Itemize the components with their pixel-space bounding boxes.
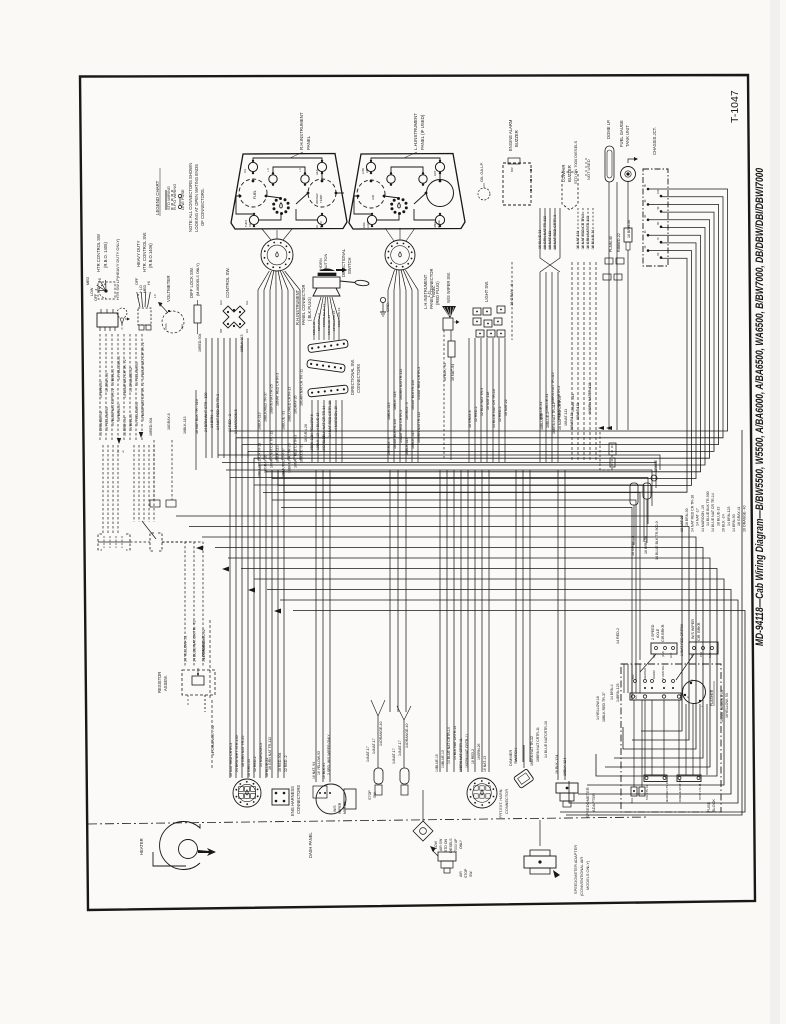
- svg-text:HI: HI: [98, 278, 102, 282]
- svg-text:MED: MED: [86, 277, 90, 285]
- svg-text:GRD.: GRD.: [385, 302, 390, 312]
- svg-text:18BLK -113: 18BLK -113: [393, 392, 397, 410]
- svg-text:16BLK-113: 16BLK-113: [240, 334, 244, 352]
- svg-text:HEAVY DUTY: HEAVY DUTY: [136, 240, 141, 267]
- svg-text:14 BLUE-13: 14 BLUE-13: [316, 413, 320, 432]
- svg-text:MD-94118—Cab Wiring Diagram—B/: MD-94118—Cab Wiring Diagram—B/BW5500, W5…: [754, 167, 766, 646]
- svg-text:( BLK.PLUG): ( BLK.PLUG): [307, 296, 312, 321]
- svg-text:MODELS ONLY): MODELS ONLY): [585, 860, 590, 890]
- svg-text:14 BRN-50: 14 BRN-50: [111, 369, 115, 386]
- svg-text:16 NAT- 94: 16 NAT- 94: [312, 762, 316, 779]
- svg-text:12 RED-2: 12 RED-2: [253, 756, 257, 772]
- svg-text:IGN: IGN: [246, 328, 249, 333]
- svg-text:7F: 7F: [656, 237, 660, 240]
- svg-text:16GRN NAT CRTR-11: 16GRN NAT CRTR-11: [465, 734, 469, 768]
- svg-text:16 BLK; 91: 16 BLK; 91: [443, 363, 447, 381]
- svg-text:15 A: 15 A: [700, 652, 703, 657]
- svg-text:DIESELS: DIESELS: [449, 838, 453, 853]
- svg-text:(R.B.O.1406): (R.B.O.1406): [148, 243, 153, 268]
- svg-text:ENG HARNESS: ENG HARNESS: [290, 786, 295, 816]
- svg-text:16 NAT RED CRTR-3: 16 NAT RED CRTR-3: [558, 396, 562, 430]
- svg-text:LINE FUSE: LINE FUSE: [180, 189, 185, 210]
- svg-text:ENGINE ALARM: ENGINE ALARM: [508, 119, 513, 151]
- svg-text:18 BLUE-13: 18 BLUE-13: [716, 507, 720, 526]
- svg-text:ONLY: ONLY: [459, 839, 463, 849]
- svg-text:14 BRN-123: 14 BRN-123: [727, 506, 731, 526]
- svg-text:18DK GRN-19: 18DK GRN-19: [337, 307, 341, 327]
- svg-text:16 BRN-50: 16 BRN-50: [117, 404, 121, 421]
- svg-text:18 GRAY - 8: 18 GRAY - 8: [509, 283, 514, 306]
- svg-text:BUZZER: BUZZER: [514, 130, 519, 147]
- svg-text:RADIO: RADIO: [652, 669, 656, 679]
- svg-text:16GRN NATTR-112: 16GRN NATTR-112: [588, 383, 592, 414]
- svg-text:BLOCK: BLOCK: [712, 799, 716, 812]
- svg-text:12 RED-2: 12 RED-2: [498, 406, 502, 422]
- svg-text:18 GRN NAT TR-25: 18 GRN NAT TR-25: [241, 736, 245, 767]
- svg-text:14 YELLOW-51: 14 YELLOW-51: [135, 362, 139, 386]
- svg-text:14 ORANGE-52: 14 ORANGE-52: [99, 411, 103, 436]
- svg-text:14NAT-17: 14NAT-17: [398, 740, 402, 756]
- svg-text:(15A): (15A): [662, 651, 665, 657]
- svg-text:18BLU/RED CRTR-13: 18BLU/RED CRTR-13: [258, 443, 262, 478]
- svg-text:AIR SW: AIR SW: [439, 838, 443, 851]
- svg-text:16 BLUE-31: 16 BLUE-31: [591, 230, 595, 249]
- svg-text:14 BLUE BLK TR-900: 14 BLUE BLK TR-900: [706, 491, 710, 526]
- svg-text:18GRAY-35: 18GRAY-35: [294, 395, 298, 414]
- svg-text:SIG.: SIG.: [248, 222, 252, 227]
- svg-text:14 ORANGE-52: 14 ORANGE-52: [129, 367, 133, 392]
- svg-text:MOTOR: MOTOR: [343, 801, 347, 814]
- svg-text:14 BLUE NAT CR TR-14: 14 BLUE NAT CR TR-14: [711, 493, 715, 532]
- svg-text:16 YELLOW-93: 16 YELLOW-93: [317, 751, 321, 775]
- svg-text:TURN SIG: TURN SIG: [661, 666, 665, 679]
- svg-text:CONNECTORS: CONNECTORS: [296, 785, 301, 814]
- svg-text:16 BRN-30: 16 BRN-30: [685, 508, 689, 526]
- svg-text:STOP LTS 14: STOP LTS 14: [698, 783, 702, 800]
- svg-text:16 NAT RED CRTR-3: 16 NAT RED CRTR-3: [553, 215, 557, 249]
- svg-text:16 BLUE-31: 16 BLUE-31: [538, 230, 542, 249]
- svg-text:HOT: HOT: [433, 170, 437, 176]
- svg-text:18BLU/RED CRTR-13: 18BLU/RED CRTR-13: [288, 387, 292, 422]
- svg-text:PANEL CONNECTOR: PANEL CONNECTOR: [301, 285, 306, 325]
- svg-text:GEN: GEN: [315, 169, 319, 175]
- svg-text:14 BLUE NAT CR TR-72: 14 BLUE NAT CR TR-72: [141, 342, 145, 380]
- svg-text:STD ON: STD ON: [444, 838, 448, 852]
- svg-text:18LT.BLUE -14: 18LT.BLUE -14: [327, 315, 331, 335]
- svg-text:CHASSIS JCT.: CHASSIS JCT.: [652, 127, 657, 155]
- svg-text:BRAKE: BRAKE: [437, 220, 441, 229]
- svg-text:OIL GA.LP.: OIL GA.LP.: [479, 162, 484, 182]
- svg-text:DOME & SPOT 14: DOME & SPOT 14: [678, 779, 682, 802]
- svg-text:W/S WIPER: W/S WIPER: [691, 619, 695, 639]
- svg-text:8F: 8F: [656, 221, 660, 224]
- svg-text:5F: 5F: [643, 184, 647, 187]
- svg-text:BAT: BAT: [220, 328, 223, 333]
- svg-text:16 RED-904: 16 RED-904: [278, 752, 282, 772]
- svg-text:18 GRAY - 8: 18 GRAY - 8: [631, 536, 635, 556]
- svg-text:DIFF.: DIFF.: [362, 222, 366, 228]
- svg-text:16GRN NATTR-112: 16GRN NATTR-112: [417, 412, 421, 443]
- svg-text:FUEL GAUGE: FUEL GAUGE: [619, 120, 624, 147]
- svg-text:OFF: OFF: [135, 277, 139, 285]
- svg-text:L.P.: L.P.: [299, 168, 302, 172]
- svg-text:W/S WIPER SW.: W/S WIPER SW.: [446, 272, 451, 303]
- svg-text:AIR: AIR: [459, 871, 463, 877]
- svg-text:DOME LP.: DOME LP.: [606, 120, 611, 139]
- svg-text:CONNECTOR: CONNECTOR: [504, 789, 509, 814]
- svg-text:-NEG: -NEG: [181, 324, 184, 330]
- svg-text:14 YELLOW-51: 14 YELLOW-51: [105, 407, 109, 431]
- svg-text:12 RED-2: 12 RED-2: [474, 406, 478, 422]
- svg-text:L.H.INSTRUMENT: L.H.INSTRUMENT: [413, 113, 418, 150]
- svg-text:OFF: OFF: [94, 293, 98, 301]
- svg-text:16GRN NATTR-112: 16GRN NATTR-112: [399, 369, 403, 400]
- svg-text:MARKER LTS 14: MARKER LTS 14: [665, 781, 669, 802]
- svg-text:16BLUE-5: 16BLUE-5: [546, 412, 550, 428]
- svg-text:14 BRN-4: 14 BRN-4: [610, 684, 614, 700]
- svg-text:R.P.O WIRING: R.P.O WIRING: [172, 184, 177, 210]
- svg-text:ACC: ACC: [670, 653, 673, 658]
- svg-text:CIR.BRKR.: CIR.BRKR.: [661, 624, 665, 642]
- svg-text:BUZZER: BUZZER: [567, 165, 572, 182]
- svg-text:16 BLK-91: 16 BLK-91: [322, 763, 326, 779]
- svg-text:16YELLOW- 93: 16YELLOW- 93: [725, 693, 729, 718]
- svg-text:14 MAROON-5: 14 MAROON-5: [259, 743, 263, 767]
- svg-text:18BLUE-5: 18BLUE-5: [540, 414, 544, 430]
- svg-text:R.H.INSTRUMENT: R.H.INSTRUMENT: [295, 289, 300, 325]
- svg-text:16 GRN NAT TR-112: 16 GRN NAT TR-112: [268, 737, 272, 770]
- svg-text:14NAT-17: 14NAT-17: [366, 746, 370, 762]
- svg-text:14YELLOW-16: 14YELLOW-16: [596, 696, 600, 720]
- svg-text:2 SPEED: 2 SPEED: [651, 624, 655, 640]
- svg-text:ASSEM.: ASSEM.: [163, 675, 168, 691]
- svg-text:DIRECTIONAL SW.: DIRECTIONAL SW.: [350, 359, 355, 395]
- svg-text:16 BRN-50: 16 BRN-50: [99, 381, 103, 398]
- svg-text:LOW: LOW: [361, 168, 365, 174]
- svg-text:14 YELLOW-6: 14 YELLOW-6: [310, 414, 314, 437]
- svg-text:DIRECTIONAL: DIRECTIONAL: [341, 248, 346, 277]
- svg-text:16 NAT-118: 16 NAT-118: [486, 392, 490, 410]
- svg-text:ACC: ACC: [220, 300, 223, 305]
- svg-text:16 NAT-111: 16 NAT-111: [548, 231, 552, 249]
- svg-text:14 ORANGE - 52: 14 ORANGE - 52: [210, 724, 215, 756]
- svg-text:BUTTON: BUTTON: [323, 254, 328, 270]
- svg-text:16BLK-113: 16BLK-113: [183, 416, 187, 434]
- svg-text:16BRN NAT TR-12: 16BRN NAT TR-12: [530, 736, 534, 766]
- svg-text:18BLK -113: 18BLK -113: [411, 431, 415, 449]
- svg-text:18 GRN-35: 18 GRN-35: [247, 759, 251, 777]
- svg-text:16 BRN-50: 16 BRN-50: [644, 536, 648, 554]
- svg-text:HTR CONTROL SW: HTR CONTROL SW: [96, 234, 101, 272]
- svg-text:18 GRAY-8: 18 GRAY-8: [468, 410, 472, 428]
- svg-text:16BRN NAT CRTR-11: 16BRN NAT CRTR-11: [459, 738, 463, 772]
- svg-text:14 BRN - 4: 14 BRN - 4: [210, 410, 214, 428]
- svg-text:HTR SW LP(HEAVY DUTY ONLY): HTR SW LP(HEAVY DUTY ONLY): [115, 238, 120, 300]
- svg-text:LIGHT SW.: LIGHT SW.: [484, 281, 489, 302]
- svg-text:7000 UP: 7000 UP: [454, 838, 458, 852]
- svg-text:FUSE: FUSE: [707, 801, 711, 812]
- svg-text:PLAIN-40: PLAIN-40: [609, 236, 613, 252]
- svg-text:(M-MODELS ONLY): (M-MODELS ONLY): [196, 263, 200, 296]
- svg-text:L.P.: L.P.: [153, 293, 157, 298]
- svg-text:EMER.: EMER.: [433, 221, 437, 229]
- svg-text:W/S: W/S: [333, 805, 337, 812]
- svg-text:14 YELLOW-51: 14 YELLOW-51: [117, 356, 121, 380]
- svg-text:NOT USED: NOT USED: [586, 159, 591, 180]
- svg-text:L.P.: L.P.: [267, 168, 270, 172]
- svg-text:14NAT REDCRTR-3: 14NAT REDCRTR-3: [720, 690, 724, 722]
- svg-text:18GRN.NAT.CR.TR.-11: 18GRN.NAT.CR.TR.-11: [300, 369, 304, 406]
- svg-text:LOOKING AT OPEN MATING ENDS: LOOKING AT OPEN MATING ENDS: [194, 164, 199, 232]
- svg-text:16BRN NAT TR-112: 16BRN NAT TR-112: [552, 402, 556, 434]
- svg-text:AIR: AIR: [365, 169, 369, 173]
- svg-text:PANEL (IF USED): PANEL (IF USED): [420, 114, 425, 150]
- svg-text:14 BLUE NATCRTR-10: 14 BLUE NATCRTR-10: [544, 721, 548, 758]
- svg-text:16 GRAY-04: 16 GRAY-04: [123, 417, 127, 436]
- svg-text:16GRN BLUE-13: 16GRN BLUE-13: [322, 304, 326, 327]
- svg-text:24 BRN WHT STR - 130: 24 BRN WHT STR - 130: [204, 392, 208, 432]
- svg-text:16GRN-26: 16GRN-26: [477, 743, 481, 760]
- svg-text:18BLK-113: 18BLK-113: [276, 445, 280, 463]
- svg-text:18 NAT BLK TR - 110: 18 NAT BLK TR - 110: [195, 399, 199, 434]
- svg-text:10F: 10F: [656, 189, 660, 194]
- svg-text:OIL: OIL: [243, 168, 247, 173]
- svg-text:(R.B.O. 1405): (R.B.O. 1405): [103, 242, 108, 268]
- svg-text:CONNECTORS: CONNECTORS: [356, 364, 361, 393]
- svg-text:HEATER: HEATER: [139, 838, 144, 855]
- svg-text:14 BLUE NAT CR TR- 72: 14 BLUE NAT CR TR- 72: [123, 359, 127, 398]
- svg-text:X: X: [690, 679, 694, 681]
- svg-text:BAT: BAT: [510, 167, 514, 172]
- svg-text:14 BLUE NAT CR TR- 72: 14 BLUE NAT CR TR- 72: [141, 382, 145, 421]
- svg-text:18BRN.NAT.TR-25: 18BRN.NAT.TR-25: [270, 384, 274, 414]
- svg-text:14ORANGE-40: 14ORANGE-40: [405, 724, 409, 748]
- svg-text:HI: HI: [147, 281, 151, 285]
- svg-text:14NAT-17: 14NAT-17: [372, 738, 376, 754]
- svg-text:14ORANGE-40: 14ORANGE-40: [379, 722, 383, 746]
- svg-text:16 BRN-30: 16 BRN-30: [627, 220, 631, 238]
- svg-text:16 NAT RED CRTR-3: 16 NAT RED CRTR-3: [229, 743, 233, 777]
- svg-text:SW.: SW.: [373, 791, 377, 798]
- svg-text:FRT.EXT. HARN.: FRT.EXT. HARN.: [498, 788, 503, 818]
- svg-text:16 BLK-124: 16 BLK-124: [555, 755, 559, 774]
- svg-text:STOP: STOP: [368, 790, 372, 800]
- svg-text:TAIL LTS 14: TAIL LTS 14: [645, 785, 649, 800]
- svg-text:18BLK RED TR-37: 18BLK RED TR-37: [602, 692, 606, 722]
- svg-text:AXLE: AXLE: [656, 628, 660, 638]
- svg-text:14BRN-123: 14BRN-123: [616, 683, 620, 702]
- svg-text:18BLK-113: 18BLK-113: [405, 437, 409, 455]
- svg-text:SOL: SOL: [246, 300, 249, 305]
- svg-text:18NAT-111: 18NAT-111: [570, 413, 574, 430]
- svg-text:2F: 2F: [643, 230, 647, 233]
- svg-text:18BLK-113: 18BLK-113: [316, 433, 320, 450]
- svg-text:T-1047: T-1047: [729, 90, 741, 123]
- svg-text:16 RED-2: 16 RED-2: [471, 749, 475, 764]
- svg-text:18BLK-113: 18BLK-113: [387, 402, 391, 420]
- svg-text:14 MAROON-5: 14 MAROON-5: [234, 409, 238, 434]
- svg-text:14NAT RED CRTRIII: 14NAT RED CRTRIII: [680, 624, 684, 656]
- svg-text:R.H.INSTRUMENT: R.H.INSTRUMENT: [299, 112, 304, 150]
- svg-text:14NAT-17: 14NAT-17: [392, 748, 396, 764]
- svg-text:14 NAT RED CR TR-3: 14 NAT RED CR TR-3: [216, 394, 220, 430]
- svg-text:16BRN NAT TR-112: 16BRN NAT TR-112: [551, 372, 555, 404]
- svg-text:9F: 9F: [656, 206, 660, 209]
- svg-text:+POS: +POS: [165, 323, 168, 330]
- svg-text:TURN: TURN: [244, 220, 248, 227]
- svg-text:16 GRN NAT TR-112: 16 GRN NAT TR-112: [543, 216, 547, 249]
- svg-text:16BLK-124: 16BLK-124: [563, 758, 567, 776]
- svg-text:16 BLK -24: 16 BLK -24: [722, 514, 726, 532]
- svg-text:14BLUE-15: 14BLUE-15: [435, 754, 439, 772]
- svg-text:NOTE: ALL CONNECTORS SHOWN: NOTE: ALL CONNECTORS SHOWN: [188, 163, 193, 232]
- svg-text:16RED-904: 16RED-904: [149, 417, 153, 436]
- svg-text:14 YELLOW-51: 14 YELLOW-51: [135, 402, 139, 426]
- svg-text:14 NAT -17: 14 NAT -17: [696, 508, 700, 526]
- svg-text:WIPER: WIPER: [338, 802, 342, 814]
- svg-text:16 NAT-111: 16 NAT-111: [576, 231, 580, 249]
- svg-text:24 BRN WHT STR-130: 24 BRN WHT STR-130: [235, 735, 239, 772]
- svg-text:16 NAT-94: 16 NAT-94: [451, 364, 455, 381]
- svg-text:16BLUE-31: 16BLUE-31: [545, 394, 549, 412]
- svg-text:14 BLK NAT CRTR-14: 14 BLK NAT CRTR-14: [453, 726, 457, 760]
- svg-text:RIBBED-22: RIBBED-22: [617, 233, 621, 252]
- svg-text:AUX: AUX: [709, 653, 712, 658]
- svg-text:HEATER: HEATER: [643, 668, 647, 679]
- svg-text:18BLK-20: 18BLK-20: [312, 321, 316, 335]
- svg-text:18NAT BLKTR-110: 18NAT BLKTR-110: [411, 380, 415, 410]
- svg-text:DIFF LOCK SW.: DIFF LOCK SW.: [189, 267, 194, 298]
- svg-text:14 YELLOW- 51: 14 YELLOW- 51: [184, 636, 188, 662]
- svg-text:14BLUE-13: 14BLUE-13: [441, 750, 445, 768]
- svg-text:ADAPTER: ADAPTER: [591, 793, 596, 812]
- svg-text:VOLTMETER: VOLTMETER: [166, 275, 171, 302]
- svg-text:1F: 1F: [643, 245, 647, 248]
- svg-text:P: P: [686, 696, 690, 698]
- svg-text:(CONVENTIONAL AIR: (CONVENTIONAL AIR: [579, 857, 584, 896]
- svg-text:16 GRN-26: 16 GRN-26: [304, 424, 308, 442]
- svg-text:FLASHER: FLASHER: [710, 689, 714, 706]
- svg-text:18NAT-111: 18NAT-111: [576, 403, 580, 420]
- svg-text:LOW AIR: LOW AIR: [561, 165, 566, 182]
- svg-text:14 BRN-50: 14 BRN-50: [129, 414, 133, 431]
- svg-text:SPEEDOMETER: SPEEDOMETER: [585, 787, 590, 818]
- svg-text:DASH PANEL: DASH PANEL: [308, 832, 313, 858]
- svg-text:14 BLUE NAT CR TR-10: 14 BLUE NAT CR TR-10: [492, 389, 496, 428]
- svg-text:OF CONNECTORS.: OF CONNECTORS.: [200, 188, 205, 226]
- svg-text:HI.: HI.: [315, 224, 319, 228]
- svg-text:14 RED-2: 14 RED-2: [616, 628, 620, 644]
- svg-text:16RED-904: 16RED-904: [198, 333, 202, 352]
- svg-text:RESISTOR: RESISTOR: [157, 672, 162, 693]
- svg-text:SPARE: SPARE: [654, 459, 658, 472]
- svg-text:18PURPLE-6: 18PURPLE-6: [317, 313, 321, 331]
- svg-text:16 GRN NAT TR-112: 16 GRN NAT TR-112: [586, 216, 590, 249]
- svg-text:16 NAT-13: 16 NAT-13: [483, 756, 487, 772]
- svg-text:SWITCH: SWITCH: [513, 748, 518, 764]
- svg-text:4F: 4F: [643, 199, 647, 202]
- svg-text:STD.WIRING: STD.WIRING: [166, 186, 171, 210]
- svg-text:18BLK/RED TR-37: 18BLK/RED TR-37: [282, 448, 286, 478]
- svg-text:PANEL: PANEL: [306, 135, 311, 150]
- svg-text:CONTROL SW.: CONTROL SW.: [225, 267, 230, 298]
- svg-text:14 NAT RED CR TR-18: 14 NAT RED CR TR-18: [690, 495, 694, 532]
- svg-text:18NAT RED CRTR-3: 18NAT RED CRTR-3: [276, 373, 280, 406]
- svg-text:TEMP: TEMP: [319, 195, 323, 203]
- svg-text:18 GRAY-41: 18 GRAY-41: [737, 506, 741, 526]
- svg-text:TANK UNIT: TANK UNIT: [625, 125, 630, 147]
- svg-text:LEGEND CHART: LEGEND CHART: [155, 180, 160, 215]
- svg-text:18BLUE -31: 18BLUE -31: [300, 444, 304, 463]
- svg-text:STD ON 7000 DIESELS: STD ON 7000 DIESELS: [573, 141, 578, 184]
- svg-text:L.H.: L.H.: [427, 290, 431, 297]
- svg-text:12 RED - 2: 12 RED - 2: [228, 414, 232, 432]
- svg-text:BAT: BAT: [631, 674, 635, 679]
- svg-text:PANEL: PANEL: [432, 286, 436, 297]
- svg-text:12 BLK NAT TR-9: 12 BLK NAT TR-9: [480, 388, 484, 416]
- svg-text:HTR. CONTROL SW.: HTR. CONTROL SW.: [142, 232, 147, 272]
- svg-text:14 MAROON -19: 14 MAROON -19: [701, 505, 705, 532]
- svg-text:IGN: IGN: [634, 695, 638, 700]
- svg-text:16NAT-111: 16NAT-111: [564, 409, 568, 426]
- svg-text:16 NAT-22: 16 NAT-22: [680, 515, 684, 532]
- svg-text:18GRAY- 6: 18GRAY- 6: [405, 402, 409, 420]
- svg-text:STOP: STOP: [464, 868, 468, 878]
- svg-text:14 BLUE NAT.CR.TR.- 72: 14 BLUE NAT.CR.TR.- 72: [193, 620, 197, 662]
- svg-text:6F: 6F: [656, 252, 660, 255]
- svg-text:14 ORANGE - 52: 14 ORANGE - 52: [202, 634, 206, 662]
- svg-text:16 ORANGE- 40: 16 ORANGE- 40: [742, 506, 746, 532]
- svg-text:BEAM: BEAM: [319, 222, 323, 229]
- svg-text:18GRAY- 6: 18GRAY- 6: [387, 437, 391, 455]
- svg-text:18GRAY-8: 18GRAY-8: [167, 413, 171, 430]
- svg-text:3F: 3F: [643, 214, 647, 217]
- svg-text:18YELLOW-18: 18YELLOW-18: [332, 311, 336, 331]
- svg-text:14 BLUE NAT CR TR-72: 14 BLUE NAT CR TR-72: [111, 388, 115, 426]
- svg-text:14 BRN-90: 14 BRN-90: [732, 514, 736, 532]
- svg-text:TAIL: TAIL: [630, 797, 634, 803]
- svg-text:16NAT -111: 16NAT -111: [571, 394, 575, 412]
- svg-text:14 BLUE NAT CRTR-14: 14 BLUE NAT CRTR-14: [447, 727, 451, 764]
- svg-text:14 BLK NAT CR TR-14: 14 BLK NAT CR TR-14: [322, 406, 326, 442]
- svg-text:18BLK-113: 18BLK-113: [258, 412, 262, 430]
- svg-text:14 NAT RED CRTR-18: 14 NAT RED CRTR-18: [328, 401, 332, 437]
- svg-text:12 RED -2: 12 RED -2: [284, 755, 288, 772]
- svg-text:CIR. BRKR.: CIR. BRKR.: [697, 622, 701, 641]
- svg-text:LOCK: LOCK: [366, 221, 370, 228]
- svg-text:AIR: AIR: [371, 194, 375, 200]
- svg-text:14 MAROON-19: 14 MAROON-19: [334, 406, 338, 432]
- svg-text:14NAT RED CRTR-3: 14NAT RED CRTR-3: [417, 367, 421, 400]
- svg-text:SPEEDOMETER ADAPTER: SPEEDOMETER ADAPTER: [573, 845, 578, 894]
- svg-text:16 NAT-22: 16 NAT-22: [504, 399, 508, 416]
- svg-text:16BRN NAT CRTR-11: 16BRN NAT CRTR-11: [536, 727, 540, 762]
- svg-text:2 SPD. W/S WIPER ONLY: 2 SPD. W/S WIPER ONLY: [327, 734, 331, 775]
- svg-text:SW.: SW.: [469, 871, 473, 877]
- svg-text:18BLUE -31: 18BLUE -31: [282, 411, 286, 430]
- svg-text:14 BLUE BLK TR-900-0: 14 BLUE BLK TR-900-0: [655, 521, 659, 560]
- svg-text:FUEL: FUEL: [253, 190, 257, 199]
- svg-text:16 GRAY-04: 16 GRAY-04: [105, 373, 109, 392]
- svg-text:16 NAT RED CR TR-3: 16 NAT RED CR TR-3: [581, 214, 585, 249]
- svg-text:SWITCH: SWITCH: [347, 257, 352, 274]
- svg-text:18BLK/RED TR-37: 18BLK/RED TR-37: [264, 392, 268, 422]
